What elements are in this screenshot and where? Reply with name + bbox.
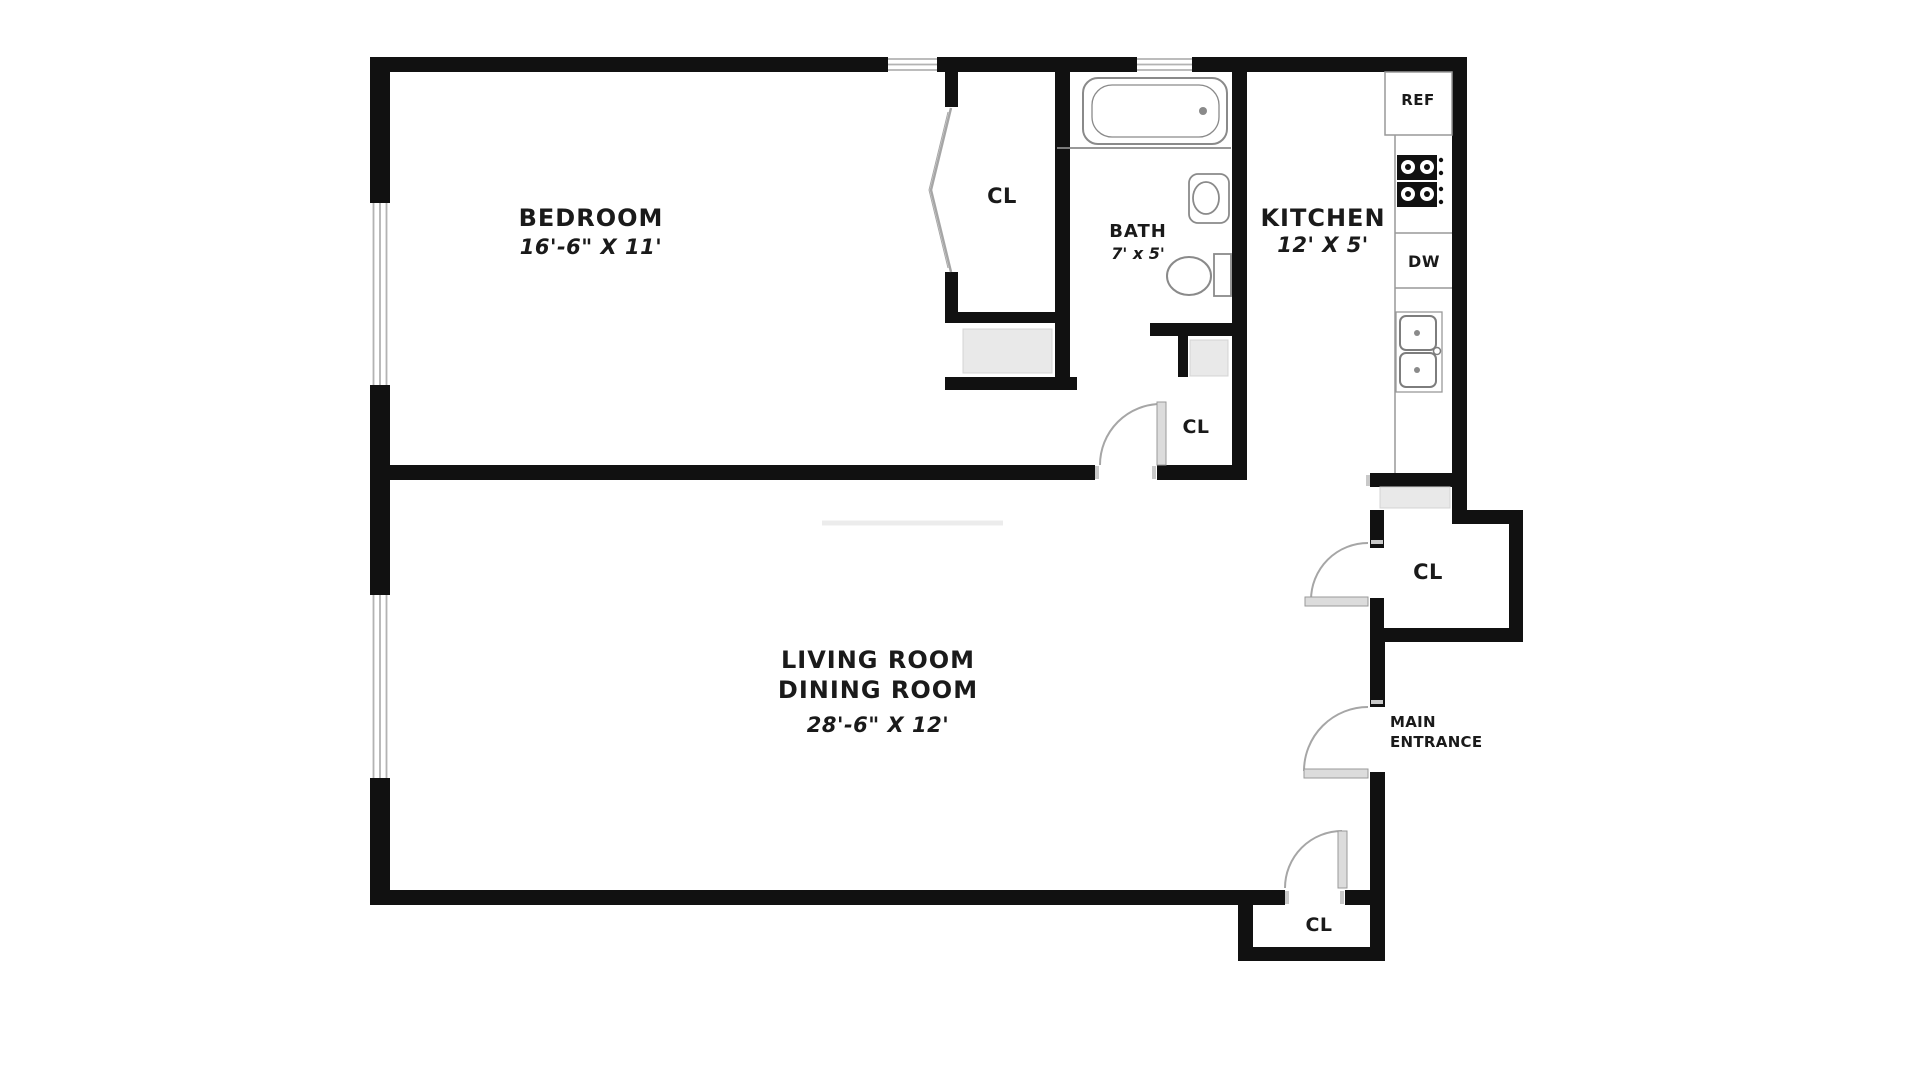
bath-label: BATH [1109, 221, 1167, 242]
bottom-closet-label: CL [1305, 914, 1332, 936]
wall-right-above-entrance [1370, 642, 1385, 707]
jamb [1285, 891, 1289, 904]
wall-hallcloset-bottom [1370, 628, 1523, 642]
wall-top-mid [937, 57, 1137, 72]
bedroom-label: BEDROOM [519, 204, 664, 232]
kitchen-dims: 12' X 5' [1277, 233, 1369, 257]
stove-knob [1439, 158, 1443, 162]
bottom-closet-door-leaf [1338, 831, 1347, 888]
wall-bottomcloset-bottom [1238, 947, 1385, 961]
stove-knob [1439, 200, 1443, 204]
walls [370, 57, 1523, 961]
window-left-living [374, 595, 387, 778]
jamb [1371, 700, 1383, 704]
living-room-label-line1: LIVING ROOM [781, 646, 975, 674]
window-top-bath [1137, 59, 1192, 70]
kitchen-label: KITCHEN [1260, 204, 1385, 232]
hall-closet-door-leaf [1305, 597, 1368, 606]
wall-closet-bath-divider [1055, 72, 1070, 390]
sink-drain-bottom [1414, 367, 1420, 373]
main-entrance-door-arc [1304, 707, 1368, 771]
jamb [1366, 475, 1370, 486]
sink-drain-top [1414, 330, 1420, 336]
floor-plan-page: BEDROOM 16'-6" X 11' CL BATH 7' x 5' KIT… [0, 0, 1920, 1080]
wall-left-middle [370, 385, 390, 595]
bedroom-door-arc [1100, 404, 1161, 465]
wall-bath-kitchen-divider [1232, 57, 1247, 480]
bath-fixtures [1057, 78, 1231, 296]
bath-niche-shelf [1190, 340, 1228, 376]
hall-small-closet-label: CL [1182, 416, 1209, 438]
hall-big-closet-label: CL [1413, 560, 1443, 584]
jamb [1152, 466, 1156, 479]
stove-burner-center [1405, 164, 1411, 170]
wall-right-below-entrance [1370, 772, 1385, 961]
wall-hallcloset-left-lower [1370, 598, 1384, 628]
bedroom-door-leaf [1157, 402, 1166, 465]
refrigerator-label: REF [1401, 91, 1435, 109]
bedroom-closet-shelf [963, 329, 1052, 373]
wall-kitchen-bottom [1370, 473, 1452, 487]
jamb [1340, 891, 1344, 904]
main-entrance-door-leaf [1304, 769, 1368, 778]
jamb [1095, 466, 1099, 479]
bath-sink-basin [1193, 182, 1219, 214]
kitchen-shelf [1380, 487, 1450, 508]
stove [1397, 155, 1443, 207]
wall-hallcloset-right [1509, 510, 1523, 642]
wall-bedcloset-shelf-top [945, 312, 1070, 323]
window-top-bedroom [888, 59, 937, 70]
living-room-dims: 28'-6" X 12' [807, 713, 949, 737]
dishwasher-label: DW [1408, 252, 1440, 271]
bedroom-closet-bifold-door [931, 108, 951, 272]
wall-bottom-main [370, 890, 1285, 905]
stove-knob [1439, 171, 1443, 175]
wall-left-upper [370, 57, 390, 203]
stove-burner-center [1424, 164, 1430, 170]
stove-knob [1439, 187, 1443, 191]
wall-bath-bottom [1150, 323, 1232, 336]
bottom-closet-door-arc [1285, 831, 1342, 888]
wall-kitchen-right [1452, 57, 1467, 510]
toilet-tank [1214, 254, 1231, 296]
wall-bath-niche-stub [1178, 336, 1188, 377]
wall-bedcloset-left-top [945, 72, 958, 107]
wall-bedcloset-left-bottom [945, 272, 958, 312]
wall-top-left [370, 57, 888, 72]
bedroom-closet-label: CL [987, 184, 1017, 208]
wall-divider-left [390, 465, 1095, 480]
bedroom-dims: 16'-6" X 11' [520, 235, 662, 259]
bath-dims: 7' x 5' [1111, 244, 1165, 263]
kitchen-fixtures [1385, 72, 1452, 473]
sink-faucet [1434, 348, 1441, 355]
wall-left-lower [370, 778, 390, 905]
main-entrance-label-line1: MAIN [1390, 713, 1436, 731]
living-room-label-line2: DINING ROOM [778, 676, 978, 704]
floor-plan-drawing: BEDROOM 16'-6" X 11' CL BATH 7' x 5' KIT… [0, 0, 1920, 1080]
stove-burner-center [1405, 191, 1411, 197]
labels: BEDROOM 16'-6" X 11' CL BATH 7' x 5' KIT… [519, 91, 1483, 936]
stove-burner-center [1424, 191, 1430, 197]
window-left-bedroom [374, 203, 387, 385]
hall-closet-door-arc [1311, 543, 1368, 600]
jamb [1371, 540, 1383, 544]
toilet-bowl [1167, 257, 1211, 295]
bathtub-drain [1199, 107, 1207, 115]
main-entrance-label-line2: ENTRANCE [1390, 733, 1482, 751]
